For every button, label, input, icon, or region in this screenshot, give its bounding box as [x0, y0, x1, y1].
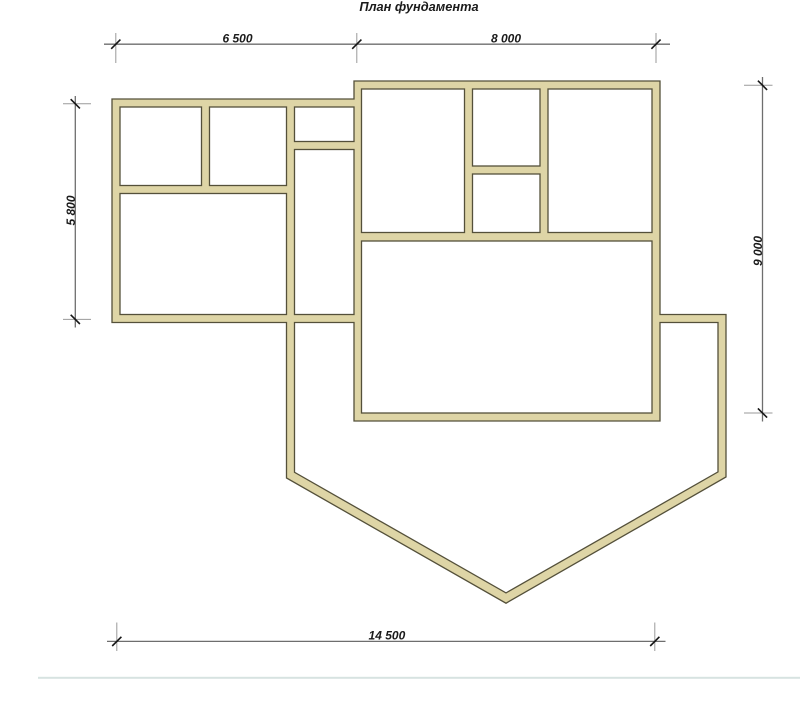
svg-text:9 000: 9 000: [751, 236, 765, 266]
svg-text:14 500: 14 500: [369, 629, 406, 643]
svg-text:План фундамента: План фундамента: [359, 0, 478, 14]
svg-text:5 800: 5 800: [64, 195, 78, 225]
svg-text:6 500: 6 500: [222, 31, 252, 45]
svg-text:8 000: 8 000: [491, 31, 521, 45]
